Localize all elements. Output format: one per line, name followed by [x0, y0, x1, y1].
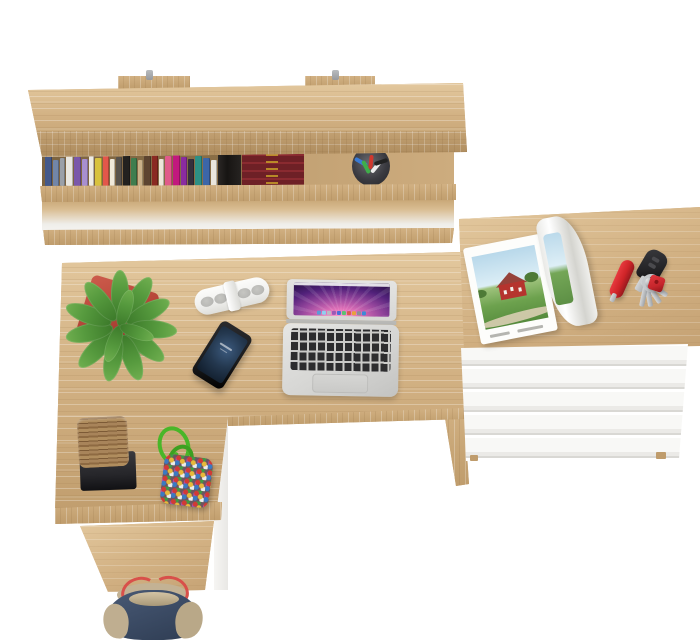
barn-window	[518, 287, 522, 291]
book-spine	[53, 160, 59, 186]
book-spine	[138, 160, 143, 186]
scene	[0, 0, 700, 641]
screen-glint	[220, 348, 227, 353]
book-spine	[103, 153, 109, 186]
key-bunch	[616, 268, 670, 314]
laptop-dock	[317, 311, 366, 316]
book-spine	[203, 158, 210, 186]
book-spine	[195, 156, 202, 186]
book-spine	[74, 157, 81, 186]
book-spine	[181, 157, 187, 186]
speaker-grille-icon	[250, 284, 265, 297]
bead-pouch	[159, 453, 214, 509]
fob-button	[651, 256, 660, 263]
book-spine	[188, 159, 194, 186]
book-spine	[66, 155, 73, 186]
tree	[474, 289, 487, 299]
shelf-bottom-board	[43, 228, 455, 245]
magazine-photo	[472, 245, 549, 330]
drawer-foot	[470, 455, 478, 461]
pen	[374, 158, 389, 166]
speaker-grille-icon	[200, 295, 215, 308]
wood-blocks	[77, 416, 130, 469]
dock-icon	[322, 311, 326, 315]
tote-inner	[129, 592, 179, 606]
mount-screw-icon	[146, 70, 153, 80]
dock-icon	[317, 311, 321, 315]
dock-icon	[347, 311, 351, 315]
shelf-top-board	[28, 83, 467, 157]
laptop-screen	[286, 279, 397, 321]
dock-icon	[352, 311, 356, 315]
book-spine	[60, 158, 65, 186]
book-spine	[110, 159, 115, 186]
dock-icon	[362, 311, 366, 315]
book-spine	[165, 156, 172, 186]
book-spine	[152, 154, 158, 186]
laptop-keyboard	[290, 328, 391, 372]
book-row-upper	[45, 153, 217, 186]
dock-icon	[357, 311, 361, 315]
tote-bag	[103, 578, 203, 641]
dock-icon	[332, 311, 336, 315]
barn-window	[504, 290, 508, 294]
caption-bar	[517, 325, 543, 333]
book-spine	[95, 158, 102, 186]
dock-icon	[327, 311, 331, 315]
laptop-base	[282, 323, 399, 397]
barn-door	[510, 287, 514, 291]
drawer-foot	[656, 452, 666, 459]
magazine	[460, 211, 604, 349]
book-spine	[116, 157, 122, 186]
dock-icon	[337, 311, 341, 315]
speaker-grille-icon	[237, 287, 252, 300]
black-book	[218, 153, 241, 186]
book-spine	[173, 153, 180, 186]
book-spine	[89, 156, 94, 186]
barn	[493, 269, 529, 301]
book-spine	[144, 156, 151, 186]
shelf-middle-board	[40, 184, 456, 202]
caption-bar	[490, 331, 510, 338]
book-spine	[82, 159, 88, 186]
laptop	[282, 279, 400, 397]
book-spine	[159, 159, 164, 186]
drawer-unit-front	[460, 343, 690, 463]
stacked-leather-books	[242, 152, 304, 186]
book-spine	[123, 155, 130, 186]
laptop-wallpaper	[293, 282, 390, 317]
plant-foliage	[52, 256, 188, 360]
dock-icon	[342, 311, 346, 315]
book-spine	[211, 160, 217, 186]
book-spine	[45, 156, 52, 186]
book-spine	[131, 158, 137, 186]
shelf-lower-row	[42, 200, 454, 231]
mount-screw-icon	[332, 70, 339, 80]
laptop-trackpad	[312, 374, 368, 394]
